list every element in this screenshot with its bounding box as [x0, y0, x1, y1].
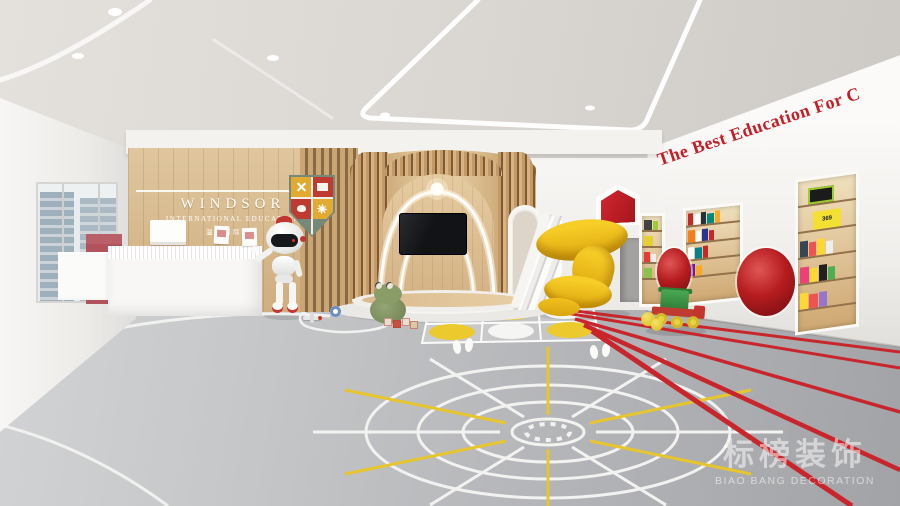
studio-watermark: 标榜装饰 BIAO BANG DECORATION — [695, 438, 895, 487]
crest-divider — [291, 197, 333, 199]
robot-arm — [293, 260, 303, 278]
toy-ball — [650, 318, 663, 331]
frog-eye — [386, 282, 393, 289]
numbered-book: 369 — [813, 208, 841, 230]
robot-torso — [272, 256, 296, 276]
toy-block — [393, 320, 401, 328]
reception-desk — [108, 246, 262, 316]
robot-ear — [300, 236, 306, 242]
stage-tv-screen — [400, 214, 466, 254]
kindergarten-lobby-render: WINDSOR INTERNATIONAL EDUCATION 温莎国际教育 — [0, 0, 900, 506]
brochure-stand — [214, 226, 230, 245]
robot-boot — [287, 302, 298, 313]
robot-greeter — [250, 214, 316, 318]
toy-train — [640, 284, 709, 334]
toy-plane — [303, 312, 323, 324]
frog-eye — [375, 282, 382, 289]
crest-book-emblem — [317, 183, 328, 191]
desk-monitor — [150, 220, 186, 245]
crest-swan-emblem — [297, 205, 306, 212]
robot-camera-dot — [292, 239, 295, 242]
bookshelf-niche-tall: 369 — [798, 174, 856, 332]
toy-block — [410, 321, 418, 329]
floor-badge-toy — [330, 306, 341, 317]
wall-accent-line — [136, 190, 296, 192]
pod-chair — [737, 248, 795, 316]
train-wheel — [687, 316, 700, 329]
train-wheel — [671, 316, 684, 329]
robot-boot — [272, 302, 283, 313]
crest-sun-emblem — [317, 204, 327, 214]
toy-block — [402, 318, 410, 326]
reception-side-counter — [58, 252, 110, 300]
toy-block — [384, 318, 392, 326]
desk-ribbed-band — [108, 246, 262, 259]
stage-lamp — [431, 183, 444, 196]
watermark-chinese: 标榜装饰 — [695, 438, 895, 472]
robot-hand — [251, 246, 258, 253]
spiral-slide — [536, 218, 634, 320]
ceiling-downlights — [72, 8, 595, 138]
watermark-english: BIAO BANG DECORATION — [695, 475, 895, 487]
